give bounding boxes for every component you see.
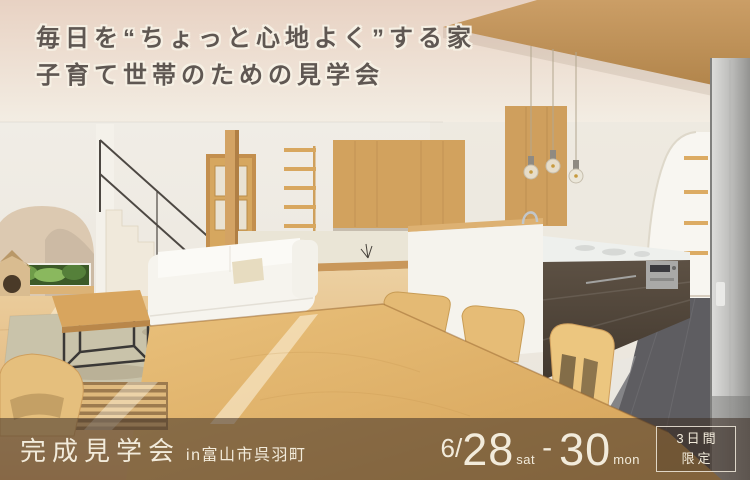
wood-panel-wall bbox=[333, 140, 465, 233]
limited-badge: 3日間 限定 bbox=[656, 426, 736, 472]
badge-line2: 限定 bbox=[678, 449, 713, 469]
headline: 毎日を“ちょっと心地よく”する家 子育て世帯のための見学会 bbox=[36, 20, 476, 94]
footer-bar: 完成見学会 in富山市呉羽町 6/ 28 sat - 30 mon 3日間 限定 bbox=[0, 418, 750, 480]
badge-line1: 3日間 bbox=[673, 429, 718, 449]
event-date-group: 6/ 28 sat - 30 mon 3日間 限定 bbox=[441, 426, 750, 472]
event-dates: 6/ 28 sat - 30 mon bbox=[441, 427, 640, 472]
event-location: in富山市呉羽町 bbox=[186, 441, 306, 465]
event-flyer: 毎日を“ちょっと心地よく”する家 子育て世帯のための見学会 完成見学会 in富山… bbox=[0, 0, 750, 480]
date-month: 6/ bbox=[441, 435, 463, 472]
arched-alcove bbox=[0, 206, 94, 300]
headline-line1: 毎日を“ちょっと心地よく”する家 bbox=[36, 20, 476, 57]
headline-line2: 子育て世帯のための見学会 bbox=[36, 57, 476, 94]
built-in-oven bbox=[646, 261, 678, 289]
date-start-weekday: sat bbox=[516, 453, 535, 472]
event-title-group: 完成見学会 in富山市呉羽町 bbox=[20, 431, 306, 468]
event-title: 完成見学会 bbox=[20, 431, 180, 468]
cushion bbox=[232, 258, 264, 284]
date-end-day: 30 bbox=[559, 427, 611, 472]
date-start-day: 28 bbox=[462, 427, 514, 472]
refrigerator bbox=[710, 58, 750, 480]
fridge-handle bbox=[716, 282, 725, 306]
date-separator: - bbox=[542, 433, 552, 472]
date-end-weekday: mon bbox=[613, 453, 640, 472]
